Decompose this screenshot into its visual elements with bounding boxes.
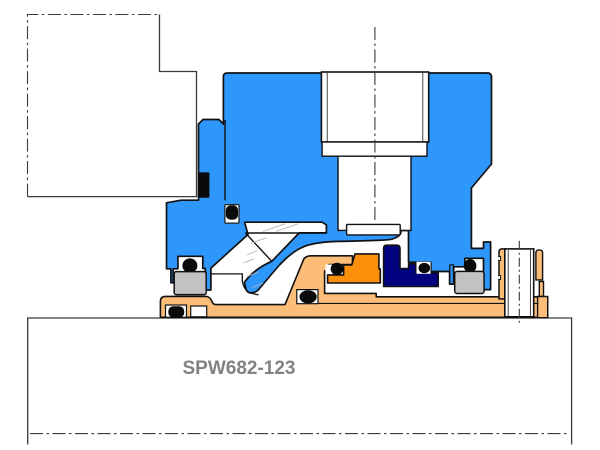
svg-text:SPW682-123: SPW682-123: [182, 358, 295, 379]
